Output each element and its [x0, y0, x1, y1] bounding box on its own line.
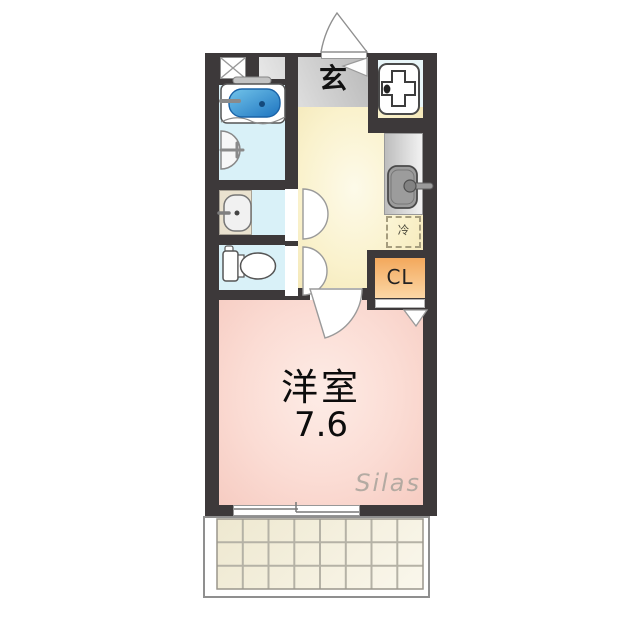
sliding-window: [233, 505, 360, 516]
wall-segment: [368, 118, 437, 133]
pipe-space-box: [220, 57, 246, 79]
room-door-opening: [310, 288, 362, 300]
washroom-door-opening: [285, 189, 298, 241]
kitchen-counter: [384, 133, 423, 215]
watermark: Silas: [295, 471, 421, 495]
closet-label: CL: [375, 267, 425, 287]
toilet-room-floor: [219, 245, 285, 290]
closet-opening: [375, 299, 425, 308]
toilet-door-opening: [285, 246, 298, 296]
wall-segment: [368, 57, 378, 118]
bathroom-floor: [219, 85, 285, 180]
room-size-label: 7.6: [219, 408, 423, 442]
room-name-label: 洋室: [219, 369, 423, 406]
wall-segment: [219, 79, 285, 85]
entrance-door-opening: [321, 50, 367, 59]
entrance-label: 玄: [298, 65, 368, 93]
refrigerator-label: 冷: [386, 225, 421, 237]
vanity-counter: [219, 190, 252, 235]
floorplan-canvas: 玄 冷 CL 洋室 7.6 Silas: [0, 0, 640, 640]
balcony-tiles: [217, 519, 423, 589]
